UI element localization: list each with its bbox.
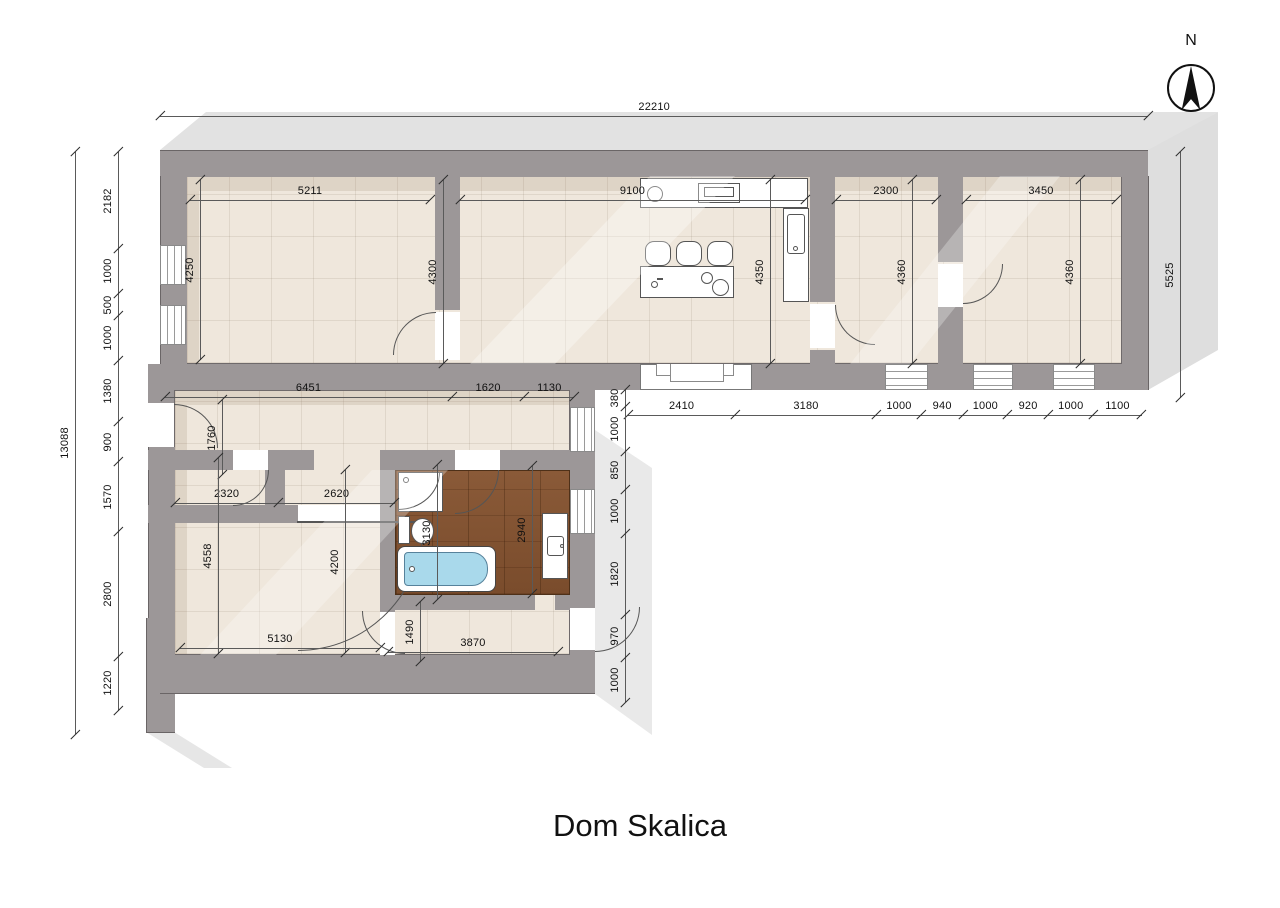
dim-chain-right-overall [1180,152,1181,398]
dim-label: 22210 [638,101,670,113]
north-arrow-icon [1167,64,1215,112]
dim-label: 3870 [460,637,485,649]
dim-chain-left-overall [75,152,76,734]
dim-tick [1137,410,1147,420]
dim-label: 4300 [427,259,439,284]
dim-label: 2300 [873,185,898,197]
dim-label: 1820 [609,562,621,587]
dim-label: 1620 [475,382,500,394]
dimension-layer: 2221013088218210005001000138090015702800… [0,0,1280,908]
dim-label: 4350 [754,259,766,284]
dim-chain-vestibule-width [388,652,558,653]
dim-label: 1000 [102,325,114,350]
dim-chain-lower-room-width [180,648,380,649]
dim-chain-corridor [165,397,574,398]
dim-label: 4558 [202,543,214,568]
dim-label: 4200 [329,549,341,574]
dim-label: 1000 [609,667,621,692]
dim-label: 4250 [184,257,196,282]
dim-label: 850 [609,461,621,480]
dim-chain-left-wall [118,152,119,711]
dim-chain-living-width [460,200,805,201]
dim-label: 6451 [296,382,321,394]
page-title: Dom Skalica [0,808,1280,844]
dim-chain-south-wall [628,415,1142,416]
dim-chain-vestibule-height [420,602,421,662]
dim-label: 1000 [609,417,621,442]
dim-label: 380 [609,389,621,408]
dim-label: 1000 [973,400,998,412]
dim-label: 3450 [1028,185,1053,197]
dim-chain-lower-room-left [218,458,219,654]
dim-chain-top-overall [160,116,1148,117]
dim-label: 3180 [793,400,818,412]
dim-chain-hall [175,503,395,504]
dim-chain-room4-height [1080,180,1081,364]
dim-label: 1130 [537,382,561,394]
dim-label: 4360 [1064,259,1076,284]
dim-label: 5130 [267,633,292,645]
dim-chain-room3-width [836,200,936,201]
dim-label: 1220 [102,671,114,696]
dim-chain-living-left-height [443,180,444,364]
dim-label: 1000 [102,259,114,284]
dim-label: 500 [102,295,114,314]
floor-plan: 2221013088218210005001000138090015702800… [0,0,1280,908]
dim-label: 5211 [298,185,322,197]
dim-label: 13088 [59,427,71,459]
dim-chain-room4-width [966,200,1116,201]
dim-label: 3130 [421,520,433,545]
dim-chain-room3-height [912,180,913,364]
dim-label: 2800 [102,581,114,606]
dim-label: 900 [102,432,114,451]
north-needle-icon [1173,66,1209,112]
dim-chain-room1-height [200,180,201,360]
dim-tick [390,498,400,508]
dim-chain-bath-right-height [532,466,533,594]
dim-label: 9100 [620,185,645,197]
dim-chain-corridor-height [222,400,223,475]
dim-label: 1570 [102,484,114,509]
dim-label: 2410 [669,400,694,412]
dim-chain-living-right-height [770,180,771,364]
dim-label: 920 [1019,400,1038,412]
dim-label: 1100 [1105,400,1129,412]
dim-label: 5525 [1164,262,1176,287]
dim-label: 1000 [886,400,911,412]
dim-label: 1000 [1058,400,1083,412]
dim-label: 970 [609,627,621,646]
dim-label: 2182 [102,188,114,213]
dim-chain-room1-width [190,200,430,201]
dim-label: 940 [933,400,952,412]
dim-label: 1380 [102,378,114,403]
dim-label: 4360 [896,259,908,284]
dim-chain-bath-left-height [437,465,438,600]
dim-label: 2940 [516,517,528,542]
dim-label: 1000 [609,499,621,524]
dim-label: 1760 [206,425,218,450]
compass-north-label: N [1168,32,1214,50]
dim-chain-lower-room-right [345,470,346,653]
dim-label: 1490 [404,619,416,644]
